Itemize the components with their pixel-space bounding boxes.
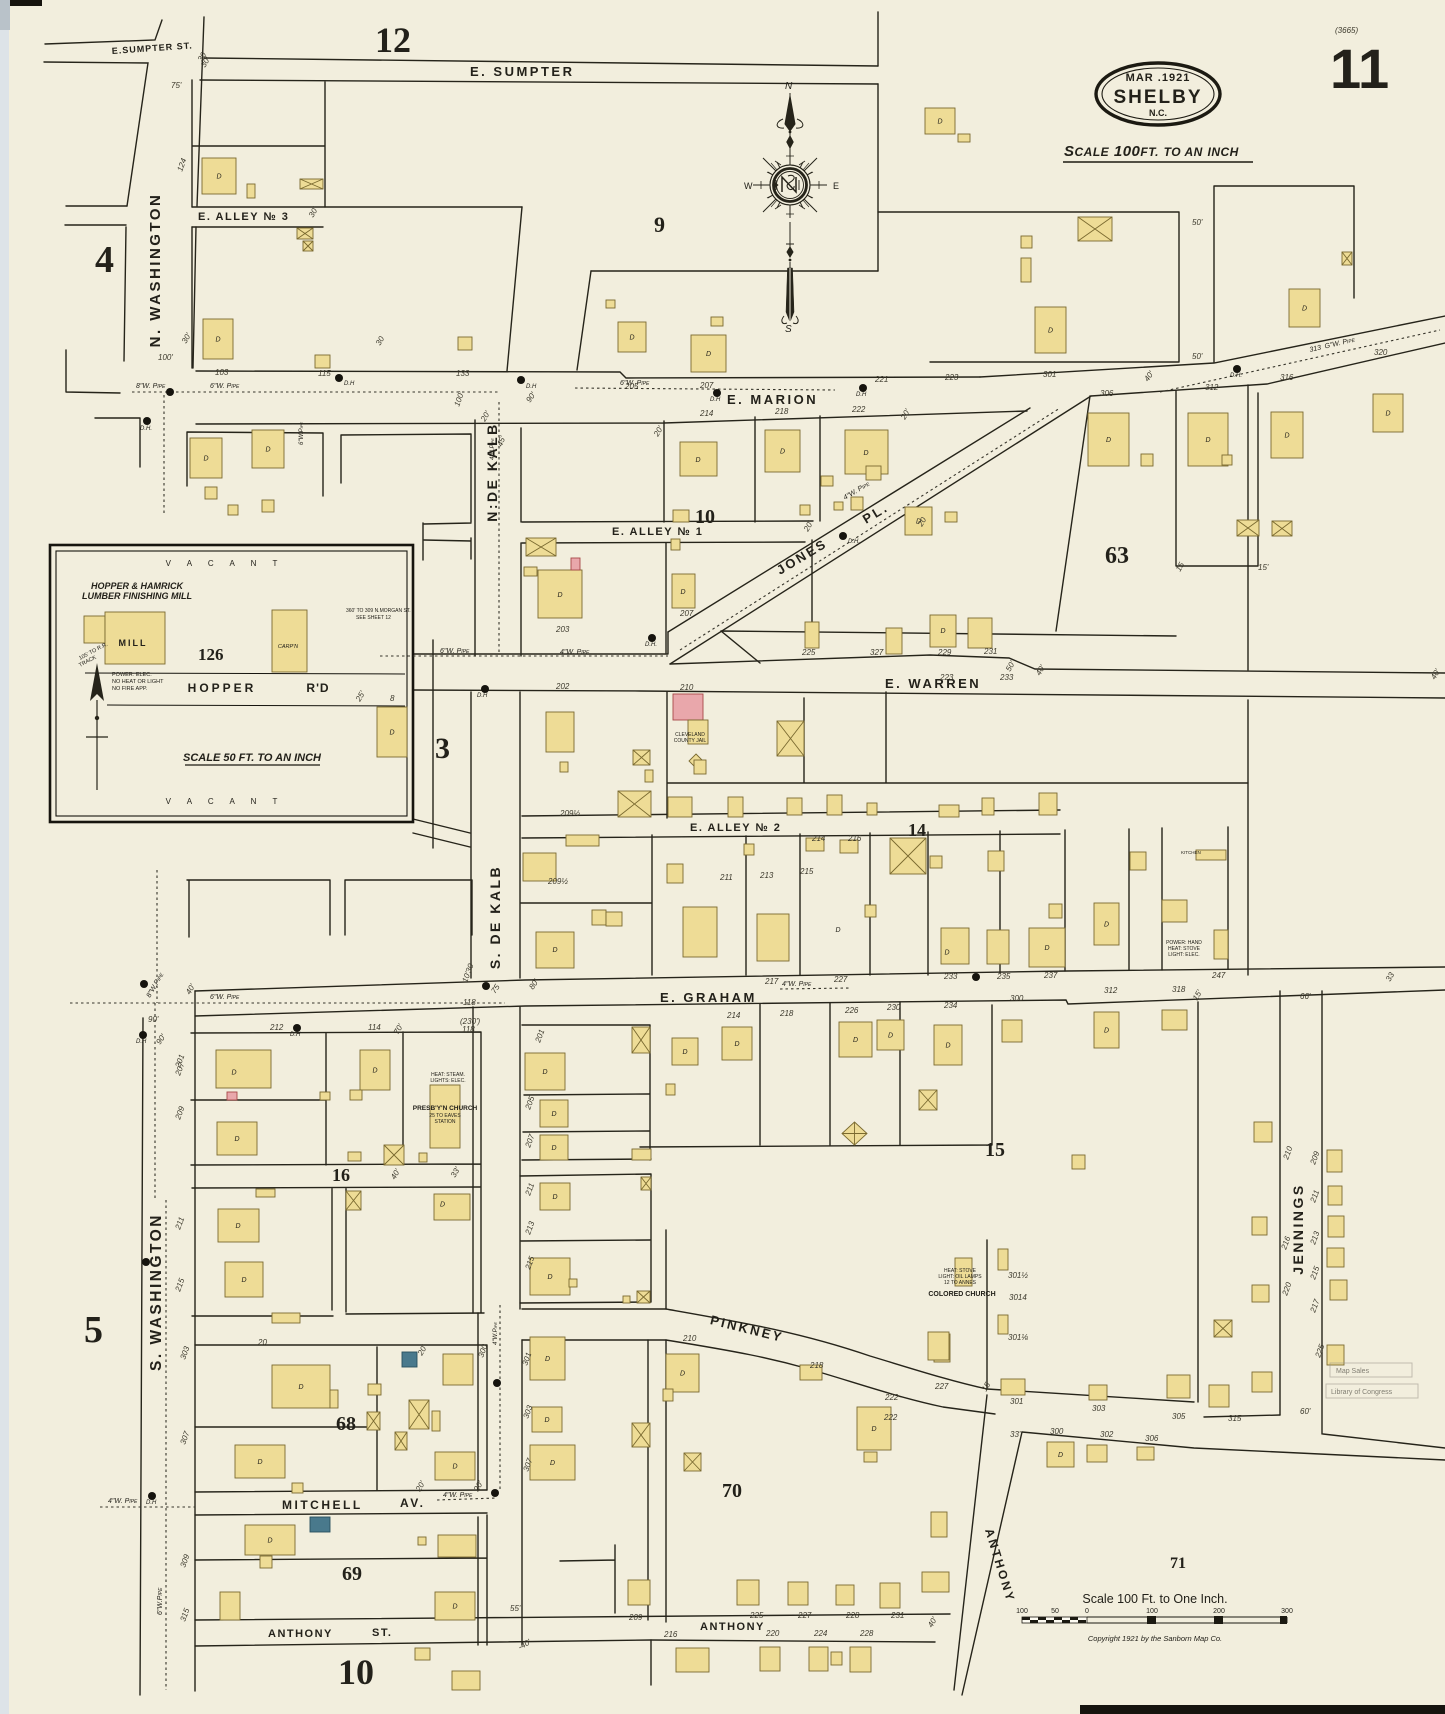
svg-text:216: 216 <box>847 834 862 843</box>
svg-text:6"W.PIPE: 6"W.PIPE <box>157 1587 164 1615</box>
svg-text:6"W. PIPE: 6"W. PIPE <box>210 994 240 1001</box>
svg-text:223: 223 <box>944 373 959 382</box>
svg-text:D: D <box>888 1033 893 1040</box>
svg-text:D: D <box>544 1417 549 1424</box>
svg-text:D.H: D.H <box>710 397 721 403</box>
svg-text:D: D <box>680 1371 685 1378</box>
svg-text:237: 237 <box>1043 971 1058 980</box>
svg-text:200: 200 <box>1213 1608 1225 1615</box>
svg-text:D: D <box>389 730 394 737</box>
svg-text:301½: 301½ <box>1008 1271 1028 1280</box>
svg-text:D: D <box>552 947 557 954</box>
svg-text:213: 213 <box>759 871 774 880</box>
svg-text:69: 69 <box>342 1563 362 1585</box>
svg-text:SCALE 50 FT. TO AN INCH: SCALE 50 FT. TO AN INCH <box>183 752 322 764</box>
svg-text:14: 14 <box>908 820 926 840</box>
svg-text:S: S <box>785 324 792 335</box>
svg-text:222: 222 <box>851 405 866 414</box>
svg-text:300: 300 <box>1050 1427 1064 1436</box>
svg-text:D.H.: D.H. <box>645 642 657 648</box>
svg-text:4"W. PIPE: 4"W. PIPE <box>108 1498 138 1505</box>
svg-text:50: 50 <box>1051 1608 1059 1615</box>
svg-text:E: E <box>833 181 839 191</box>
svg-text:D: D <box>235 1223 240 1230</box>
svg-text:10: 10 <box>338 1652 374 1692</box>
svg-text:303: 303 <box>1092 1404 1106 1413</box>
svg-text:D: D <box>231 1070 236 1077</box>
svg-text:ANTHONY: ANTHONY <box>700 1621 765 1633</box>
svg-text:D.H.: D.H. <box>1230 373 1242 379</box>
svg-text:234: 234 <box>943 1001 958 1010</box>
svg-text:MILL: MILL <box>119 638 148 648</box>
svg-text:118: 118 <box>462 1025 475 1034</box>
svg-text:Map Sales: Map Sales <box>1336 1368 1370 1375</box>
svg-text:301: 301 <box>1010 1397 1023 1406</box>
svg-text:205: 205 <box>624 382 639 391</box>
svg-text:D: D <box>452 1464 457 1471</box>
svg-text:12 TO ANNES: 12 TO ANNES <box>944 1280 977 1286</box>
svg-text:218: 218 <box>779 1009 794 1018</box>
svg-text:E. SUMPTER: E. SUMPTER <box>470 64 574 79</box>
svg-text:207: 207 <box>699 381 714 390</box>
svg-text:214: 214 <box>726 1011 741 1020</box>
svg-text:16: 16 <box>332 1165 350 1185</box>
svg-text:115: 115 <box>318 369 331 378</box>
svg-text:HOPPER: HOPPER <box>188 681 257 695</box>
svg-text:247: 247 <box>1211 971 1226 980</box>
svg-text:COLORED CHURCH: COLORED CHURCH <box>928 1291 995 1298</box>
svg-text:N: N <box>785 81 793 92</box>
svg-text:D: D <box>257 1459 262 1466</box>
svg-text:3014: 3014 <box>1009 1293 1027 1302</box>
svg-text:71: 71 <box>1170 1555 1186 1572</box>
svg-text:90': 90' <box>148 1015 159 1024</box>
svg-text:D: D <box>853 1037 858 1044</box>
svg-text:306: 306 <box>1145 1434 1159 1443</box>
svg-text:D: D <box>1302 306 1307 313</box>
svg-text:360' TO 309 N.MORGAN ST.: 360' TO 309 N.MORGAN ST. <box>346 608 411 614</box>
svg-text:D: D <box>1048 328 1053 335</box>
svg-text:D: D <box>452 1604 457 1611</box>
svg-text:312: 312 <box>1205 383 1219 392</box>
svg-text:D: D <box>551 1145 556 1152</box>
svg-text:D: D <box>372 1068 377 1075</box>
svg-text:D: D <box>550 1460 555 1467</box>
svg-text:D.H: D.H <box>477 693 488 699</box>
svg-text:D: D <box>551 1111 556 1118</box>
svg-text:D: D <box>557 592 562 599</box>
svg-text:D: D <box>267 1538 272 1545</box>
svg-text:LIGHTS: ELEC.: LIGHTS: ELEC. <box>430 1078 465 1084</box>
svg-text:33': 33' <box>1010 1430 1021 1439</box>
svg-text:222: 222 <box>883 1413 898 1422</box>
svg-text:217: 217 <box>764 977 779 986</box>
svg-text:HOPPER & HAMRICK: HOPPER & HAMRICK <box>91 581 185 591</box>
svg-text:D: D <box>215 337 220 344</box>
svg-text:11: 11 <box>1330 37 1389 100</box>
svg-text:6"W. PIPE: 6"W. PIPE <box>210 383 240 390</box>
svg-text:12: 12 <box>375 20 411 60</box>
svg-text:STATION: STATION <box>435 1119 456 1125</box>
svg-text:D: D <box>1104 1028 1109 1035</box>
svg-text:N.C.: N.C. <box>1149 108 1167 118</box>
svg-text:5: 5 <box>84 1309 103 1351</box>
svg-text:D.H: D.H <box>344 381 355 387</box>
svg-text:D: D <box>241 1277 246 1284</box>
svg-text:4"W. PIPE: 4"W. PIPE <box>443 1492 473 1499</box>
svg-text:SEE SHEET 12: SEE SHEET 12 <box>356 615 391 621</box>
svg-text:306: 306 <box>1100 389 1114 398</box>
svg-text:COUNTY JAIL: COUNTY JAIL <box>674 738 707 744</box>
svg-text:300: 300 <box>1010 994 1024 1003</box>
svg-text:229: 229 <box>937 648 952 657</box>
svg-text:SHELBY: SHELBY <box>1113 87 1202 108</box>
svg-text:Copyright 1921 by the Sanborn: Copyright 1921 by the Sanborn Map Co. <box>1088 1634 1222 1643</box>
svg-text:JENNINGS: JENNINGS <box>1290 1183 1306 1275</box>
svg-text:15': 15' <box>1258 563 1269 572</box>
svg-text:D: D <box>1104 922 1109 929</box>
svg-text:NO FIRE APP.: NO FIRE APP. <box>112 686 148 692</box>
svg-text:D: D <box>945 1043 950 1050</box>
svg-text:312: 312 <box>1104 986 1118 995</box>
svg-text:302: 302 <box>1100 1430 1114 1439</box>
svg-text:209: 209 <box>628 1613 643 1622</box>
svg-text:100: 100 <box>1016 1608 1028 1615</box>
svg-text:ANTHONY: ANTHONY <box>268 1628 333 1640</box>
svg-text:300: 300 <box>1281 1608 1293 1615</box>
svg-text:227: 227 <box>797 1611 812 1620</box>
svg-text:D: D <box>734 1041 739 1048</box>
svg-text:214: 214 <box>811 834 826 843</box>
svg-text:D.H: D.H <box>526 384 537 390</box>
svg-text:202: 202 <box>555 682 570 691</box>
svg-text:D: D <box>871 1426 876 1433</box>
svg-text:W: W <box>744 181 753 191</box>
svg-text:D: D <box>1044 945 1049 952</box>
svg-text:D: D <box>234 1136 239 1143</box>
svg-text:231: 231 <box>983 647 997 656</box>
svg-text:4: 4 <box>95 239 114 281</box>
svg-text:D: D <box>944 950 949 957</box>
svg-text:233: 233 <box>943 972 958 981</box>
svg-text:230: 230 <box>886 1003 901 1012</box>
svg-text:235: 235 <box>996 972 1011 981</box>
svg-text:228: 228 <box>845 1611 860 1620</box>
svg-text:225: 225 <box>749 1611 764 1620</box>
svg-text:S. DE KALB: S. DE KALB <box>487 865 503 969</box>
svg-text:POWER: ELEC.: POWER: ELEC. <box>112 672 152 678</box>
svg-text:D.H: D.H <box>290 1032 301 1038</box>
svg-text:D: D <box>203 456 208 463</box>
svg-text:D.H: D.H <box>146 1500 157 1506</box>
svg-text:207: 207 <box>679 609 694 618</box>
svg-text:D: D <box>440 1202 445 1209</box>
svg-text:221: 221 <box>874 375 888 384</box>
svg-text:223: 223 <box>939 673 954 682</box>
svg-text:D: D <box>542 1069 547 1076</box>
svg-text:R'D: R'D <box>306 681 329 695</box>
svg-text:10: 10 <box>695 506 715 528</box>
svg-text:66': 66' <box>1300 992 1311 1001</box>
svg-text:V A C A N T: V A C A N T <box>166 559 285 568</box>
svg-text:63: 63 <box>1105 543 1129 569</box>
svg-text:327: 327 <box>870 648 884 657</box>
svg-text:D: D <box>706 351 711 358</box>
svg-text:210: 210 <box>679 683 694 692</box>
svg-text:D: D <box>695 457 700 464</box>
svg-text:D: D <box>940 628 945 635</box>
svg-text:103: 103 <box>215 368 229 377</box>
svg-text:50': 50' <box>1192 352 1203 361</box>
svg-text:D: D <box>545 1356 550 1363</box>
svg-text:D: D <box>863 450 868 457</box>
svg-text:318: 318 <box>1172 985 1186 994</box>
svg-text:227: 227 <box>934 1382 949 1391</box>
svg-text:D: D <box>1385 411 1390 418</box>
svg-text:ST.: ST. <box>372 1627 392 1639</box>
svg-text:D: D <box>835 927 840 934</box>
svg-text:D.H: D.H <box>856 392 867 398</box>
svg-text:8"W. PIPE: 8"W. PIPE <box>136 383 166 390</box>
svg-text:E. ALLEY № 2: E. ALLEY № 2 <box>690 822 781 834</box>
svg-text:LUMBER FINISHING MILL: LUMBER FINISHING MILL <box>82 591 192 601</box>
svg-text:211: 211 <box>719 873 733 882</box>
svg-text:LIGHT: ELEC.: LIGHT: ELEC. <box>1168 952 1199 958</box>
svg-text:D: D <box>680 589 685 596</box>
svg-text:55': 55' <box>510 1604 521 1613</box>
svg-text:133: 133 <box>456 369 470 378</box>
svg-text:KITCHEN: KITCHEN <box>1181 850 1201 855</box>
svg-text:Library of Congress: Library of Congress <box>1331 1389 1393 1396</box>
svg-text:222: 222 <box>884 1393 899 1402</box>
svg-text:E. ALLEY № 3: E. ALLEY № 3 <box>198 211 289 223</box>
svg-text:231: 231 <box>890 1611 904 1620</box>
svg-text:E. ALLEY № 1: E. ALLEY № 1 <box>612 526 703 538</box>
svg-text:75': 75' <box>171 81 182 90</box>
svg-text:220: 220 <box>765 1629 780 1638</box>
svg-text:305: 305 <box>1172 1412 1186 1421</box>
svg-text:301: 301 <box>1043 370 1056 379</box>
svg-text:316: 316 <box>1280 373 1294 382</box>
svg-text:20: 20 <box>257 1338 267 1347</box>
svg-text:D: D <box>1284 433 1289 440</box>
svg-text:126: 126 <box>198 645 224 664</box>
svg-text:Scale 100 Ft. to One Inch.: Scale 100 Ft. to One Inch. <box>1082 1592 1227 1606</box>
svg-text:4"W. PIPE: 4"W. PIPE <box>782 981 812 988</box>
svg-text:SCALE 100FT. TO AN INCH: SCALE 100FT. TO AN INCH <box>1064 143 1239 160</box>
svg-text:D: D <box>629 335 634 342</box>
svg-text:68: 68 <box>336 1413 356 1435</box>
svg-text:70: 70 <box>722 1480 742 1502</box>
svg-text:209½: 209½ <box>547 877 568 886</box>
svg-text:301⅛: 301⅛ <box>1008 1333 1028 1342</box>
svg-text:E. GRAHAM: E. GRAHAM <box>660 990 757 1005</box>
svg-text:100: 100 <box>1146 1608 1158 1615</box>
svg-text:PRESB'Y'N CHURCH: PRESB'Y'N CHURCH <box>413 1105 478 1112</box>
svg-text:MAR .1921: MAR .1921 <box>1126 72 1191 84</box>
svg-text:E. MARION: E. MARION <box>727 392 818 407</box>
svg-text:D: D <box>1205 437 1210 444</box>
svg-text:212: 212 <box>269 1023 284 1032</box>
svg-text:228: 228 <box>859 1629 874 1638</box>
svg-text:D: D <box>1058 1452 1063 1459</box>
svg-text:D: D <box>265 447 270 454</box>
svg-text:D.H.: D.H. <box>848 539 860 545</box>
svg-text:114: 114 <box>368 1023 381 1032</box>
svg-text:D: D <box>682 1049 687 1056</box>
svg-text:60': 60' <box>1300 1407 1311 1416</box>
svg-text:209½: 209½ <box>559 809 580 818</box>
svg-text:4"W. PIPE: 4"W. PIPE <box>560 649 590 656</box>
svg-text:CARP'N: CARP'N <box>278 644 298 650</box>
svg-text:N. WASHINGTON: N. WASHINGTON <box>147 193 164 348</box>
svg-text:3: 3 <box>435 732 450 765</box>
svg-text:100': 100' <box>158 353 173 362</box>
svg-text:D: D <box>552 1194 557 1201</box>
svg-text:214: 214 <box>699 409 714 418</box>
svg-text:D: D <box>1106 437 1111 444</box>
svg-text:(230'): (230') <box>460 1017 481 1026</box>
svg-text:0: 0 <box>1085 1608 1089 1615</box>
svg-text:210: 210 <box>682 1334 697 1343</box>
svg-text:215: 215 <box>799 867 814 876</box>
svg-text:320: 320 <box>1374 348 1388 357</box>
svg-text:E. WARREN: E. WARREN <box>885 676 981 691</box>
svg-text:203: 203 <box>555 625 570 634</box>
svg-text:218: 218 <box>774 407 789 416</box>
svg-text:AV.: AV. <box>400 1496 426 1510</box>
svg-text:D: D <box>298 1384 303 1391</box>
svg-text:218: 218 <box>809 1361 824 1370</box>
svg-text:315: 315 <box>1228 1414 1242 1423</box>
svg-text:227: 227 <box>833 975 848 984</box>
svg-text:D.H.: D.H. <box>140 426 152 432</box>
svg-text:15: 15 <box>985 1139 1005 1161</box>
svg-text:MITCHELL: MITCHELL <box>282 1498 363 1512</box>
svg-text:225: 225 <box>801 648 816 657</box>
svg-text:9: 9 <box>654 212 665 237</box>
svg-text:D: D <box>216 174 221 181</box>
svg-text:8: 8 <box>390 694 395 703</box>
svg-text:NO HEAT OR LIGHT: NO HEAT OR LIGHT <box>112 679 164 685</box>
svg-text:233: 233 <box>999 673 1014 682</box>
svg-text:S. WASHINGTON: S. WASHINGTON <box>148 1213 165 1371</box>
svg-text:(3665): (3665) <box>1335 26 1358 35</box>
svg-text:V A C A N T: V A C A N T <box>166 797 285 806</box>
svg-text:224: 224 <box>813 1629 828 1638</box>
svg-text:50': 50' <box>1192 218 1203 227</box>
svg-text:6"W. PIPE: 6"W. PIPE <box>440 648 470 655</box>
svg-text:D.H: D.H <box>136 1039 147 1045</box>
svg-text:226: 226 <box>844 1006 859 1015</box>
svg-text:D: D <box>780 449 785 456</box>
svg-text:D: D <box>937 119 942 126</box>
svg-text:D: D <box>547 1274 552 1281</box>
svg-text:216: 216 <box>663 1630 678 1639</box>
svg-text:118: 118 <box>463 998 476 1007</box>
